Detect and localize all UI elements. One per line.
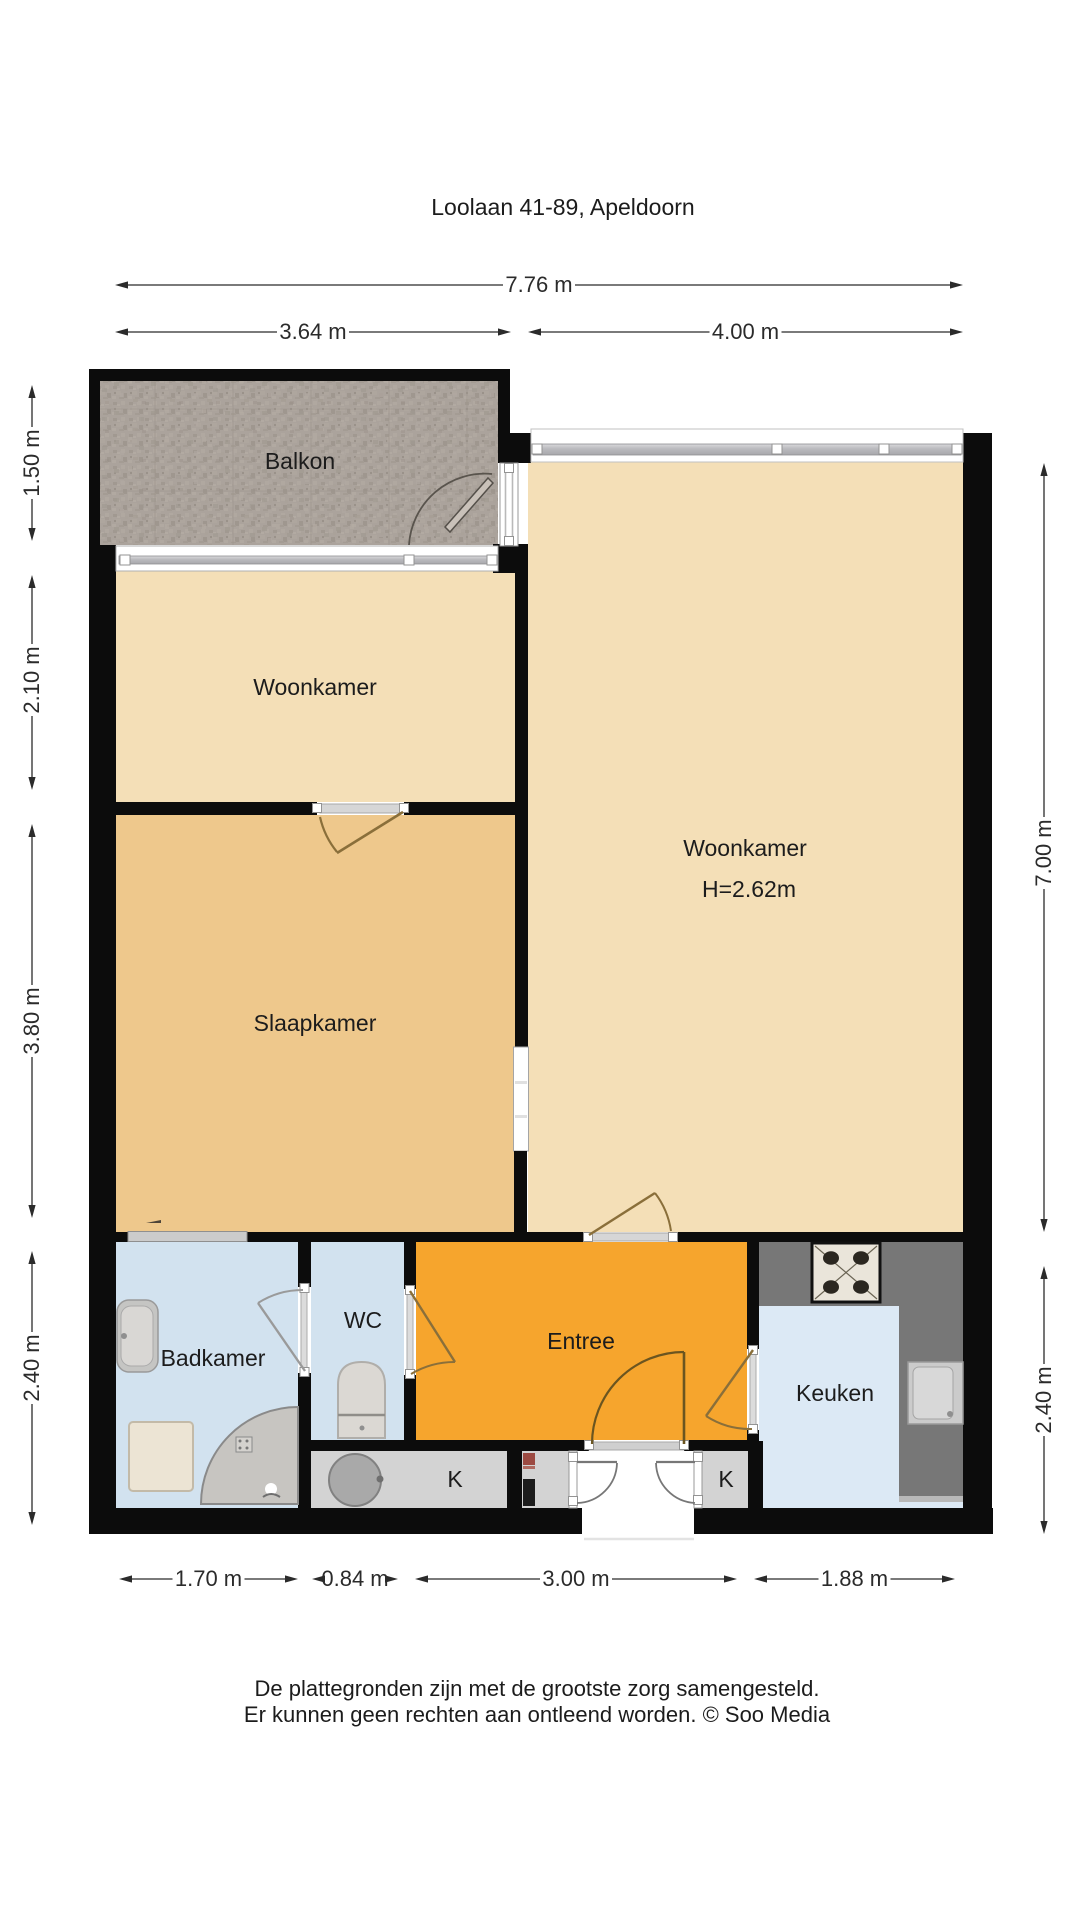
svg-text:4.00 m: 4.00 m — [712, 319, 779, 344]
svg-text:Slaapkamer: Slaapkamer — [254, 1010, 377, 1036]
svg-text:H=2.62m: H=2.62m — [702, 876, 796, 902]
svg-text:De plattegronden zijn met de g: De plattegronden zijn met de grootste zo… — [255, 1676, 820, 1701]
svg-text:2.40 m: 2.40 m — [1031, 1366, 1056, 1433]
svg-text:Woonkamer: Woonkamer — [683, 835, 807, 861]
svg-text:Balkon: Balkon — [265, 448, 335, 474]
svg-text:1.88 m: 1.88 m — [821, 1566, 888, 1591]
svg-text:Woonkamer: Woonkamer — [253, 674, 377, 700]
svg-text:Keuken: Keuken — [796, 1380, 874, 1406]
svg-text:2.10 m: 2.10 m — [19, 646, 44, 713]
svg-text:Badkamer: Badkamer — [161, 1345, 266, 1371]
svg-text:3.00 m: 3.00 m — [542, 1566, 609, 1591]
svg-text:1.70 m: 1.70 m — [175, 1566, 242, 1591]
svg-text:Loolaan 41-89, Apeldoorn: Loolaan 41-89, Apeldoorn — [431, 194, 694, 220]
svg-text:2.40 m: 2.40 m — [19, 1334, 44, 1401]
svg-text:K: K — [718, 1466, 734, 1492]
svg-text:3.80 m: 3.80 m — [19, 987, 44, 1054]
svg-text:K: K — [447, 1466, 463, 1492]
svg-text:7.00 m: 7.00 m — [1031, 819, 1056, 886]
svg-text:Er kunnen geen rechten aan ont: Er kunnen geen rechten aan ontleend word… — [244, 1702, 831, 1727]
svg-text:0.84 m: 0.84 m — [321, 1566, 388, 1591]
svg-text:7.76 m: 7.76 m — [505, 272, 572, 297]
svg-text:3.64 m: 3.64 m — [279, 319, 346, 344]
svg-text:1.50 m: 1.50 m — [19, 429, 44, 496]
svg-text:WC: WC — [344, 1307, 382, 1333]
svg-text:Entree: Entree — [547, 1328, 615, 1354]
